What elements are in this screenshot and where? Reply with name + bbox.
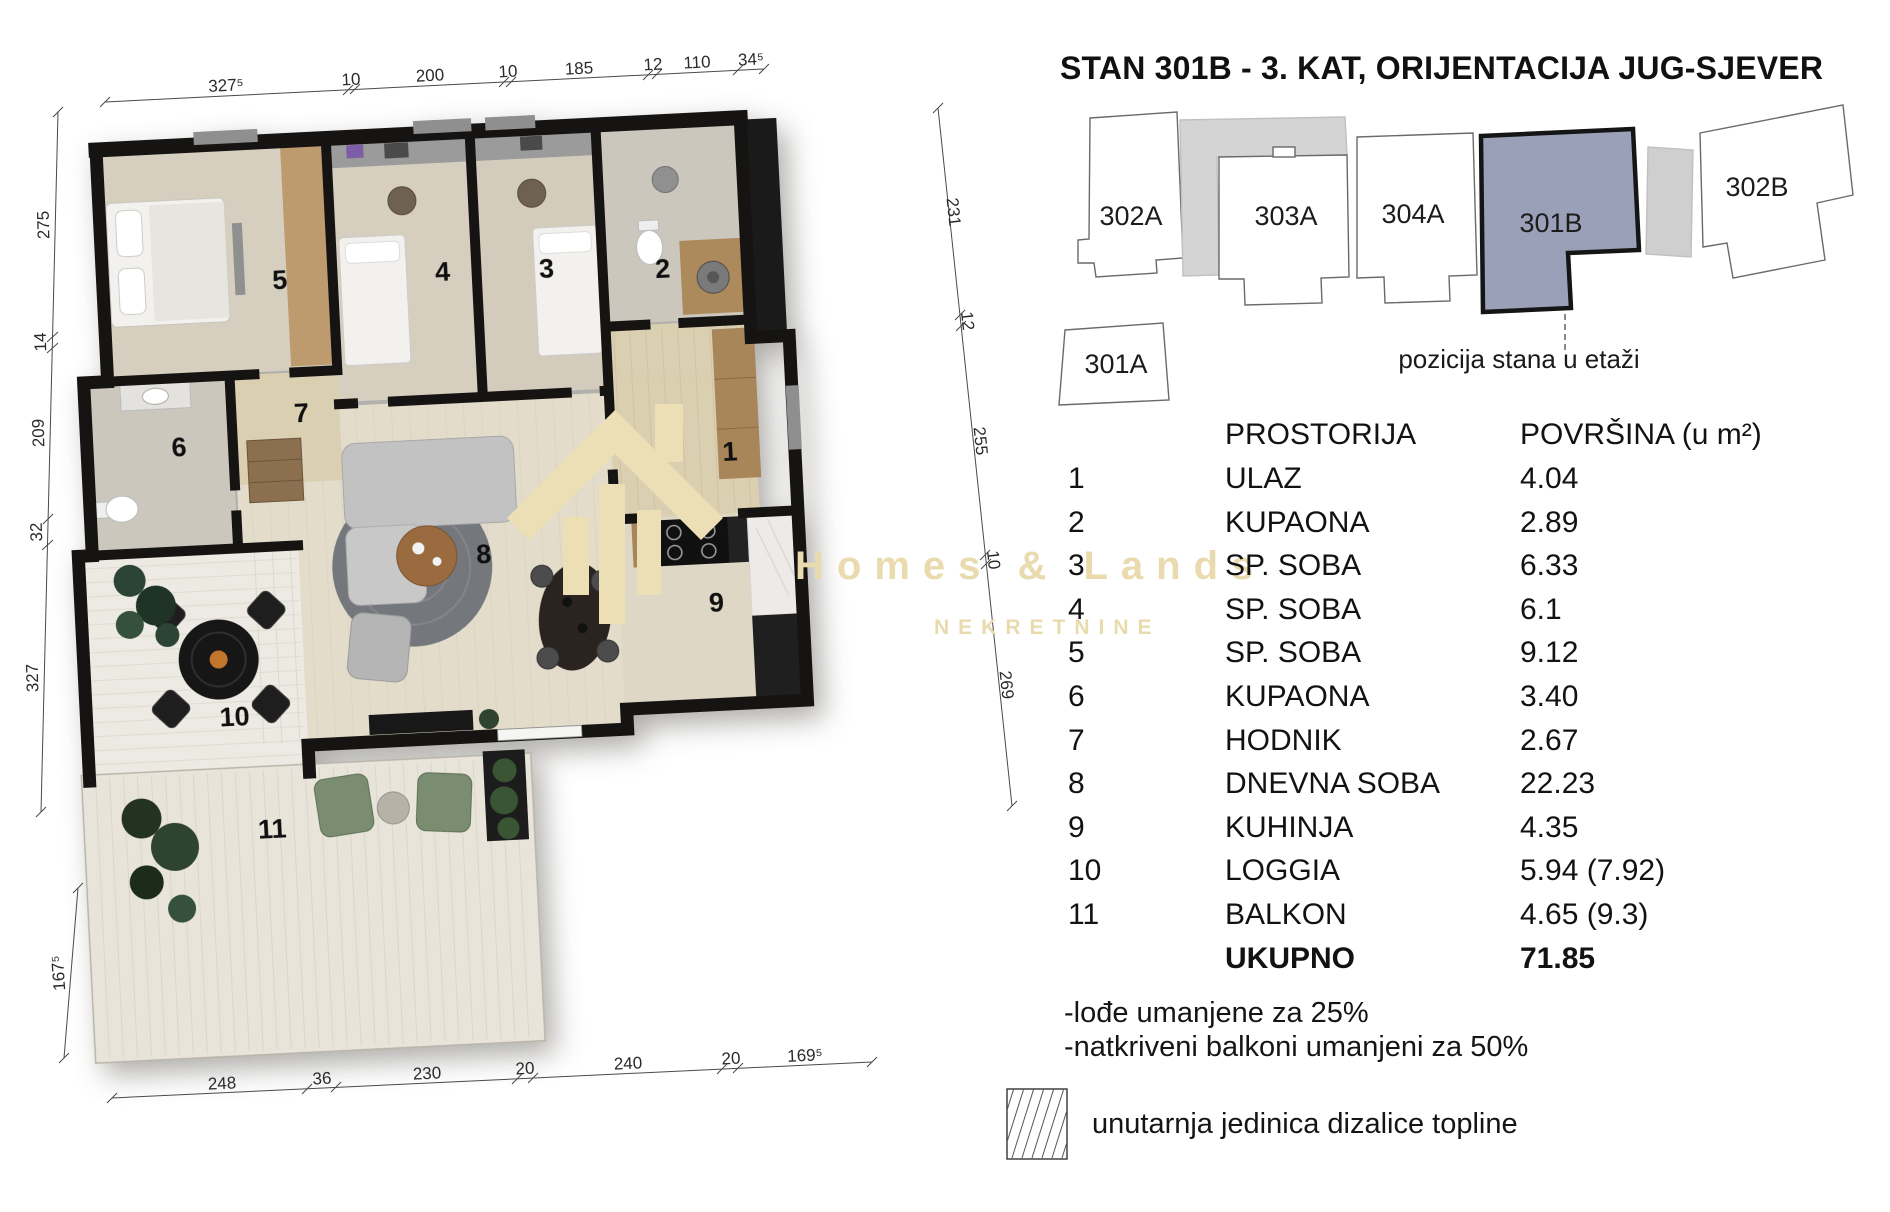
row-name: ULAZ bbox=[1225, 462, 1302, 496]
row-name: KUPAONA bbox=[1225, 680, 1369, 714]
unit-label-302B: 302B bbox=[1725, 172, 1788, 202]
dim-bottom-1: 36 bbox=[312, 1069, 332, 1090]
row-area: 4.65 (9.3) bbox=[1520, 898, 1648, 932]
table-row: 7HODNIK2.67 bbox=[1068, 724, 1858, 764]
row-name: DNEVNA SOBA bbox=[1225, 767, 1440, 801]
hatch-legend-icon bbox=[1006, 1088, 1068, 1160]
page-title: STAN 301B - 3. KAT, ORIJENTACIJA JUG-SJE… bbox=[1060, 50, 1860, 87]
header-room: PROSTORIJA bbox=[1225, 418, 1416, 452]
row-area: 22.23 bbox=[1520, 767, 1595, 801]
table-row: 9KUHINJA4.35 bbox=[1068, 811, 1858, 851]
table-row: 4SP. SOBA6.1 bbox=[1068, 593, 1858, 633]
table-row: 6KUPAONA3.40 bbox=[1068, 680, 1858, 720]
row-area: 3.40 bbox=[1520, 680, 1578, 714]
unit-label-303A: 303A bbox=[1254, 201, 1317, 231]
dim-left-5: 167⁵ bbox=[48, 955, 70, 992]
unit-label-301B: 301B bbox=[1519, 208, 1582, 238]
row-name: SP. SOBA bbox=[1225, 593, 1361, 627]
legend-label: unutarnja jedinica dizalice topline bbox=[1092, 1108, 1518, 1141]
dim-top-7: 34⁵ bbox=[738, 49, 765, 70]
dim-top-4: 185 bbox=[564, 58, 593, 79]
dim-left-3: 32 bbox=[27, 522, 47, 541]
row-name: KUPAONA bbox=[1225, 506, 1369, 540]
dim-top-3: 10 bbox=[498, 62, 518, 83]
dim-left-2: 209 bbox=[29, 419, 50, 448]
position-caption: pozicija stana u etaži bbox=[1319, 344, 1719, 375]
dim-top-1: 10 bbox=[341, 70, 361, 91]
dim-bottom-2: 230 bbox=[412, 1063, 441, 1084]
note-loggia: -lođe umanjene za 25% bbox=[1064, 997, 1369, 1030]
row-num: 5 bbox=[1068, 636, 1085, 670]
row-num: 1 bbox=[1068, 462, 1085, 496]
floorplan-sheet: 5 4 3 2 6 7 1 8 9 10 11 327⁵ bbox=[0, 0, 1890, 1212]
dim-left-1: 14 bbox=[31, 332, 51, 351]
row-num: 4 bbox=[1068, 593, 1085, 627]
dim-right-3: 10 bbox=[982, 550, 1004, 571]
dim-top-5: 12 bbox=[643, 55, 663, 76]
dim-top-0: 327⁵ bbox=[208, 75, 244, 97]
dim-bottom-6: 169⁵ bbox=[787, 1045, 823, 1067]
dim-bottom-5: 20 bbox=[721, 1049, 741, 1070]
table-total-row: UKUPNO 71.85 bbox=[1068, 942, 1858, 982]
row-area: 4.04 bbox=[1520, 462, 1578, 496]
dim-bottom-3: 20 bbox=[515, 1059, 535, 1080]
table-row: 10LOGGIA5.94 (7.92) bbox=[1068, 854, 1858, 894]
row-name: LOGGIA bbox=[1225, 854, 1340, 888]
unit-label-302A: 302A bbox=[1099, 201, 1162, 231]
header-area: POVRŠINA (u m²) bbox=[1520, 418, 1762, 452]
unit-303A-notch bbox=[1273, 147, 1295, 157]
dim-right-0: 231 bbox=[942, 197, 965, 227]
row-area: 5.94 (7.92) bbox=[1520, 854, 1665, 888]
table-row: 11BALKON4.65 (9.3) bbox=[1068, 898, 1858, 938]
dim-right-1: 12 bbox=[956, 311, 978, 332]
row-num: 8 bbox=[1068, 767, 1085, 801]
dim-bottom-4: 240 bbox=[613, 1053, 642, 1074]
dim-top-6: 110 bbox=[683, 52, 711, 73]
row-area: 6.33 bbox=[1520, 549, 1578, 583]
table-row: 8DNEVNA SOBA22.23 bbox=[1068, 767, 1858, 807]
dim-right-2: 255 bbox=[969, 426, 992, 456]
row-name: BALKON bbox=[1225, 898, 1347, 932]
table-row: 3SP. SOBA6.33 bbox=[1068, 549, 1858, 589]
table-row: 5SP. SOBA9.12 bbox=[1068, 636, 1858, 676]
row-name: SP. SOBA bbox=[1225, 549, 1361, 583]
row-name: SP. SOBA bbox=[1225, 636, 1361, 670]
row-num: 10 bbox=[1068, 854, 1101, 888]
unit-302A-shape bbox=[1078, 112, 1183, 277]
row-name: KUHINJA bbox=[1225, 811, 1353, 845]
total-value: 71.85 bbox=[1520, 942, 1595, 976]
connector-shape bbox=[1646, 147, 1693, 257]
note-balcony: -natkriveni balkoni umanjeni za 50% bbox=[1064, 1031, 1528, 1064]
row-num: 2 bbox=[1068, 506, 1085, 540]
row-num: 11 bbox=[1068, 898, 1099, 932]
row-num: 3 bbox=[1068, 549, 1085, 583]
table-header: PROSTORIJA POVRŠINA (u m²) bbox=[1068, 418, 1858, 458]
unit-label-304A: 304A bbox=[1381, 199, 1444, 229]
table-row: 2KUPAONA2.89 bbox=[1068, 506, 1858, 546]
dim-left-0: 275 bbox=[34, 211, 55, 240]
table-row: 1ULAZ4.04 bbox=[1068, 462, 1858, 502]
row-area: 4.35 bbox=[1520, 811, 1578, 845]
row-area: 9.12 bbox=[1520, 636, 1578, 670]
row-area: 6.1 bbox=[1520, 593, 1562, 627]
dim-right-4: 269 bbox=[995, 670, 1018, 700]
row-area: 2.67 bbox=[1520, 724, 1578, 758]
row-name: HODNIK bbox=[1225, 724, 1342, 758]
row-area: 2.89 bbox=[1520, 506, 1578, 540]
row-num: 6 bbox=[1068, 680, 1085, 714]
dim-bottom-0: 248 bbox=[207, 1073, 236, 1094]
row-num: 7 bbox=[1068, 724, 1085, 758]
row-num: 9 bbox=[1068, 811, 1085, 845]
dim-left-4: 327 bbox=[23, 664, 44, 693]
total-label: UKUPNO bbox=[1225, 942, 1355, 976]
dim-top-2: 200 bbox=[415, 65, 444, 86]
unit-position-diagram: 302A 303A 304A 301B 302B 301A bbox=[1045, 95, 1855, 425]
unit-label-301A: 301A bbox=[1084, 349, 1147, 379]
